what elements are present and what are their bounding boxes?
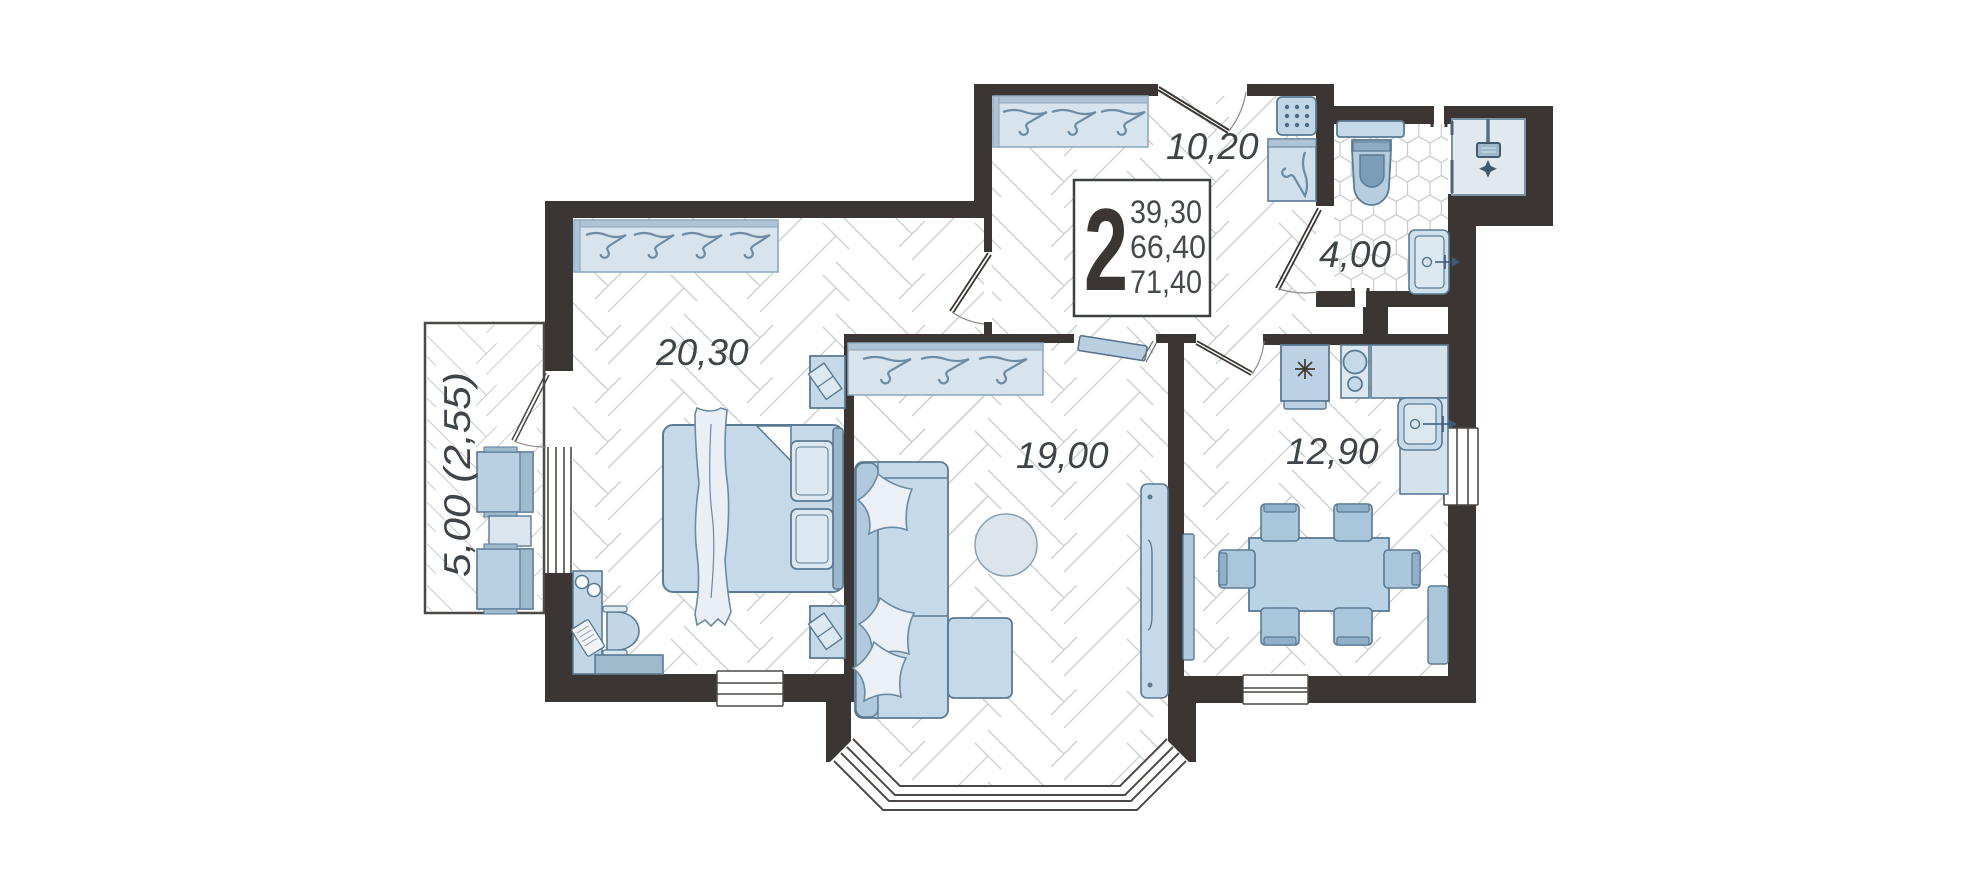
svg-text:19,00: 19,00 bbox=[1016, 435, 1109, 476]
svg-text:2: 2 bbox=[1084, 184, 1128, 315]
svg-text:5,00 (2,55): 5,00 (2,55) bbox=[437, 372, 478, 577]
svg-text:39,30: 39,30 bbox=[1130, 194, 1202, 230]
svg-text:10,20: 10,20 bbox=[1166, 126, 1259, 167]
svg-text:20,30: 20,30 bbox=[655, 332, 749, 373]
svg-text:66,40: 66,40 bbox=[1130, 229, 1206, 265]
svg-text:4,00: 4,00 bbox=[1319, 234, 1391, 275]
svg-text:12,90: 12,90 bbox=[1286, 431, 1379, 472]
svg-text:71,40: 71,40 bbox=[1130, 264, 1202, 300]
